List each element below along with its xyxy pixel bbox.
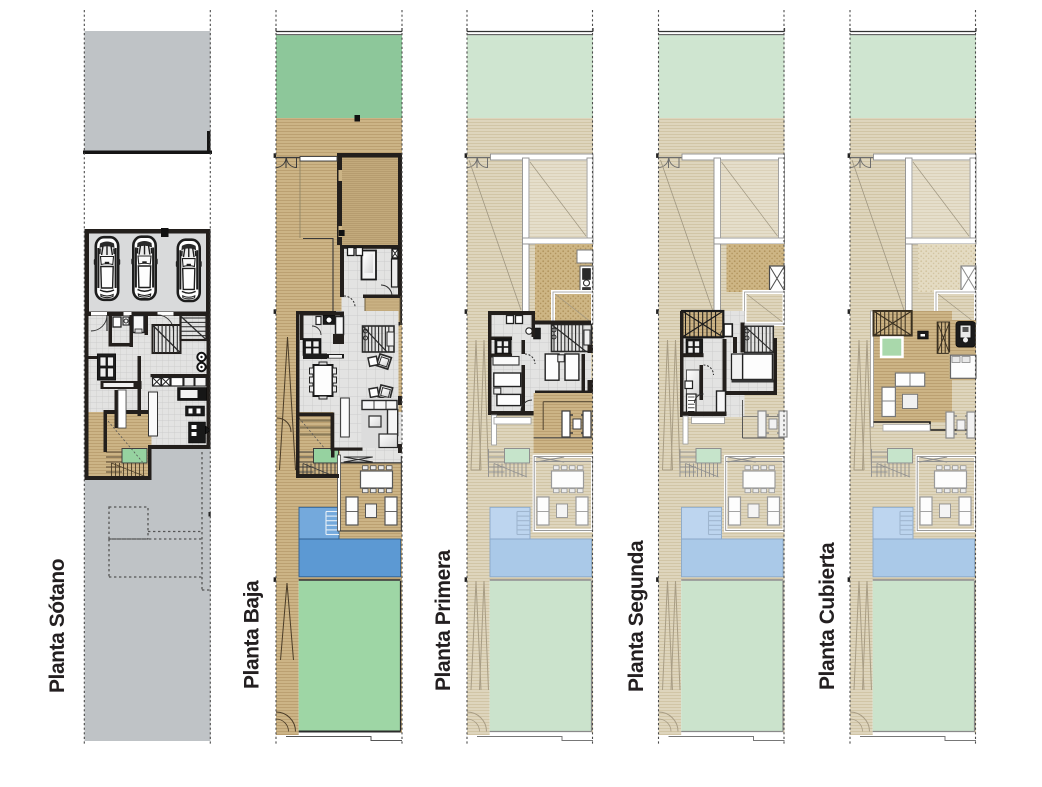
svg-text:Planta Segunda: Planta Segunda [625, 540, 648, 692]
svg-text:Planta Primera: Planta Primera [432, 549, 455, 691]
svg-text:Planta Cubierta: Planta Cubierta [816, 542, 839, 690]
svg-text:Planta Sótano: Planta Sótano [46, 559, 69, 693]
svg-text:Planta Baja: Planta Baja [241, 580, 264, 689]
